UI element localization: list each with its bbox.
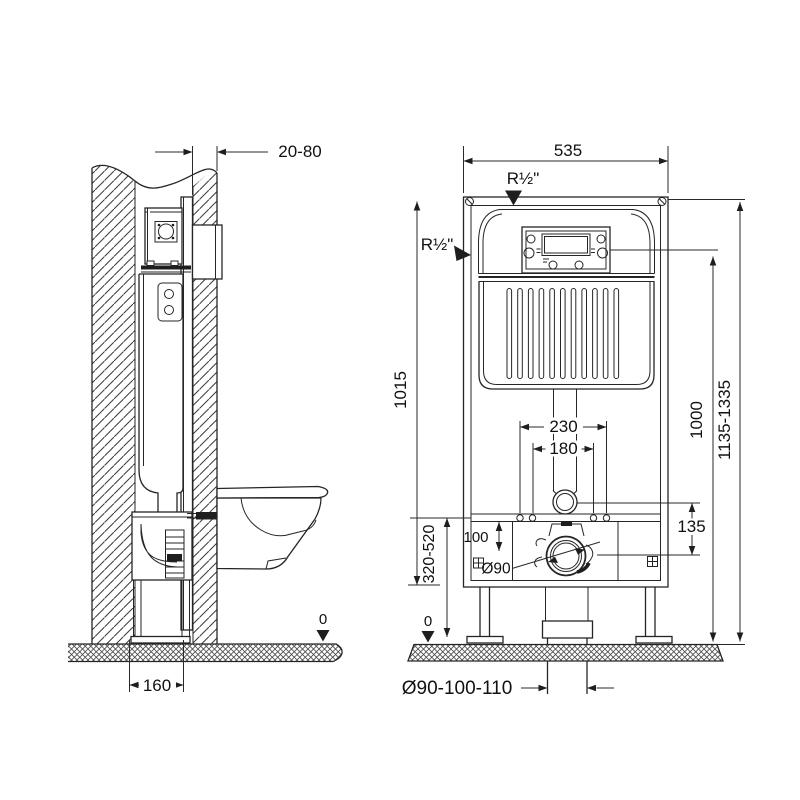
dim-label-rail-offset: 100 [463, 529, 488, 546]
side-view: 20-80 160 0 [68, 142, 342, 695]
floor-level-marker-front: 0 [422, 613, 435, 643]
dim-label-fixing-inner: 180 [549, 439, 577, 458]
front-view: Ø90 535 R½" R½" [391, 141, 745, 699]
dim-label-width: 535 [554, 141, 582, 160]
dim-label-outlet-range: 320-520 [421, 525, 438, 584]
floor-level-marker-side: 0 [317, 611, 330, 642]
flush-bend-fitting [553, 490, 577, 514]
dim-label-water-top: R½" [507, 169, 540, 188]
dim-clearance: 20-80 [155, 142, 322, 195]
dim-label-water-side: R½" [421, 235, 454, 254]
dim-label-clearance: 20-80 [278, 142, 321, 161]
installation-frame-drawing: 20-80 160 0 [0, 0, 800, 800]
dim-width: 535 [464, 141, 669, 193]
toilet-bowl [217, 487, 328, 570]
dim-label-zero-side: 0 [319, 611, 327, 628]
dim-total-height: 1135-1335 [668, 200, 745, 642]
dim-label-total-height: 1135-1335 [715, 380, 734, 460]
dim-label-frame-height: 1015 [391, 371, 410, 409]
flush-plate-cutout [522, 227, 610, 273]
dim-label-zero-front: 0 [424, 613, 432, 630]
dim-label-actuation-height: 1000 [687, 401, 706, 439]
flush-plate-box-side [193, 225, 223, 279]
dim-label-fixing-outer: 230 [549, 417, 577, 436]
dim-label-outlet-dia: Ø90 [481, 561, 511, 578]
floor-side [68, 644, 342, 662]
dim-label-drain-pipe: Ø90-100-110 [402, 678, 513, 699]
technical-drawing-page: 20-80 160 0 [0, 0, 800, 800]
dim-label-inlet-to-outlet: 135 [677, 517, 705, 536]
floor-front [408, 645, 745, 662]
dim-drain-pipe: Ø90-100-110 [402, 678, 614, 699]
dim-label-frame-depth: 160 [143, 676, 171, 695]
drain-pipe-bottom [543, 587, 593, 694]
